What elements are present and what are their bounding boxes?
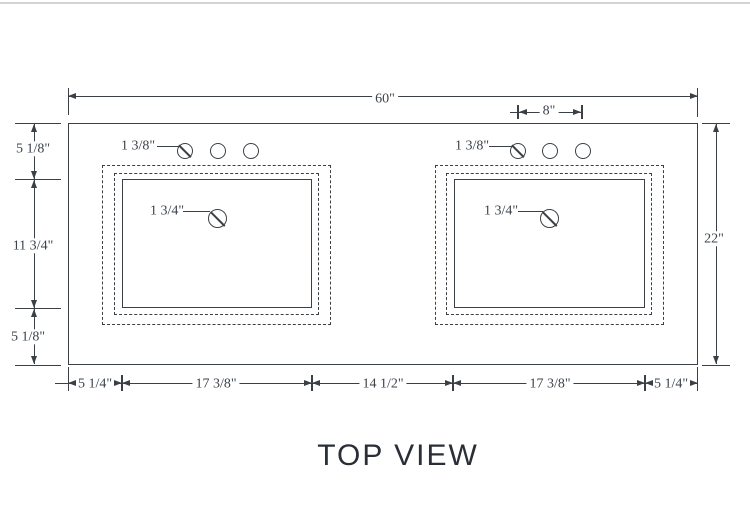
left-faucet-hole-size-label: 1 3/8" [121,138,155,153]
hole-slash [542,211,557,226]
arrowhead [645,380,653,386]
arrowhead [31,309,37,317]
left-drain-hole-size-label: 1 3/4" [150,203,184,218]
arrowhead [713,356,719,364]
dim-left-middle-label: 11 3/4" [10,238,57,253]
dim-left-bottom-label: 5 1/8" [8,329,48,344]
dim-bottom-2-label: 17 3/8" [192,376,239,391]
arrowhead [31,300,37,308]
arrowhead [31,124,37,132]
right-faucet-hole-2 [542,143,558,159]
dim-bottom-5-label: 5 1/4" [651,376,691,391]
arrowhead [312,380,320,386]
extension-tick [581,105,583,119]
arrowhead [690,93,698,99]
extension-line [697,367,698,391]
arrowhead [690,380,698,386]
arrowhead [68,93,76,99]
dim-faucet-span-label: 8" [540,103,559,118]
leader-line [489,146,512,147]
arrowhead [713,124,719,132]
left-drain-hole [208,209,227,228]
hole-slash [210,211,225,226]
right-faucet-hole-size-label: 1 3/8" [455,138,489,153]
dim-bottom-1-label: 5 1/4" [75,376,115,391]
arrowhead [304,380,312,386]
left-sink-basin-outline [122,179,312,308]
extension-line [68,367,69,391]
left-faucet-hole-3 [243,143,259,159]
dim-bottom-4-label: 17 3/8" [526,376,573,391]
right-sink-basin-outline [454,179,645,308]
arrowhead [114,380,122,386]
right-faucet-hole-1 [510,143,526,159]
right-drain-hole-size-label: 1 3/4" [484,203,518,218]
extension-line [15,365,61,366]
right-faucet-hole-3 [575,143,591,159]
leader-line [183,211,210,212]
arrowhead [453,380,461,386]
extension-line [15,308,61,309]
technical-drawing-canvas: 1 3/8" 1 3/8" 1 3/4" 1 3/4" 60" 8" 22" 5… [0,0,750,530]
arrowhead [573,109,581,115]
left-faucet-hole-2 [210,143,226,159]
dim-depth-label: 22" [701,231,727,246]
view-title: TOP VIEW [317,439,479,473]
arrowhead [445,380,453,386]
dim-bottom-3-label: 14 1/2" [359,376,406,391]
arrowhead [31,180,37,188]
arrowhead [31,171,37,179]
extension-line [15,123,61,124]
leader-line [157,146,179,147]
arrowhead [122,380,130,386]
arrowhead [68,380,76,386]
dim-top-width-label: 60" [372,91,398,106]
dim-left-top-label: 5 1/8" [13,141,53,156]
arrowhead [637,380,645,386]
hole-slash [512,145,525,158]
arrowhead [31,356,37,364]
left-faucet-hole-1 [177,143,193,159]
leader-line [518,211,543,212]
extension-line [15,179,61,180]
extension-line [702,365,730,366]
page-top-border [0,2,750,4]
arrowhead [519,109,527,115]
hole-slash [179,145,192,158]
